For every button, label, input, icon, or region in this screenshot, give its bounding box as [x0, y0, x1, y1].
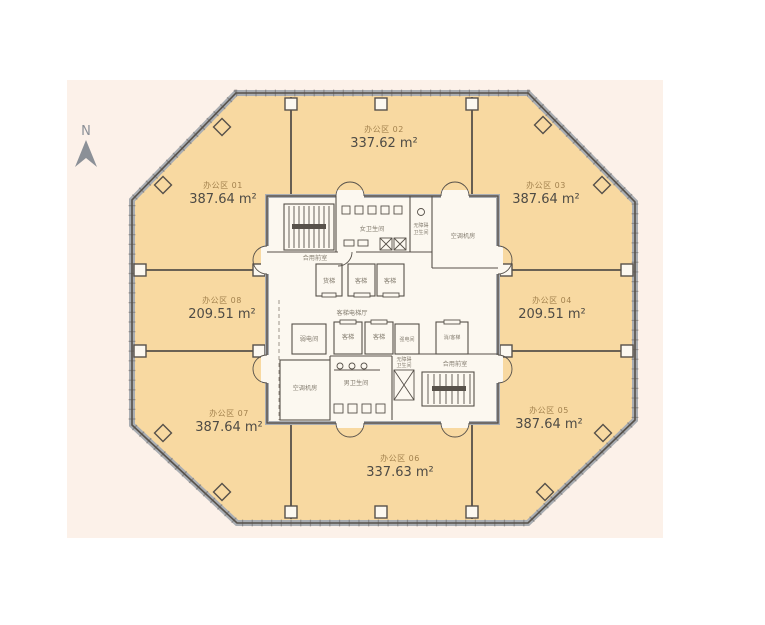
elevator-door-sill [444, 320, 460, 324]
column [375, 98, 387, 110]
column [466, 506, 478, 518]
door-opening [336, 190, 364, 201]
room-label: 无障碍 [396, 356, 411, 363]
room-label: 合用前室 [443, 360, 468, 368]
zone-name: 办公区 02 [364, 124, 404, 134]
floor-plan-page: N [0, 0, 765, 625]
floor-plan-canvas: N [0, 0, 765, 625]
core: 合用前室 货梯 客梯 客梯 女卫生间 无障碍 卫生间 空调机房 客梯电梯厅 弱电… [253, 182, 512, 437]
column [466, 98, 478, 110]
elevator-door-sill [340, 320, 356, 324]
stair-rail [432, 386, 466, 391]
north-label: N [81, 124, 91, 139]
zone-area: 387.64 m² [515, 417, 583, 432]
zone-name: 办公区 08 [202, 295, 242, 305]
door-opening [261, 355, 272, 383]
room-label: 女卫生间 [360, 225, 385, 233]
door-opening [336, 417, 364, 428]
door-opening [441, 190, 469, 201]
column [285, 506, 297, 518]
zone-name: 办公区 06 [380, 453, 420, 463]
room-label: 强电间 [399, 336, 414, 343]
room-label: 无障碍 [413, 222, 428, 229]
room-label: 弱电间 [300, 335, 319, 343]
zone-name: 办公区 01 [203, 180, 243, 190]
zone-area: 209.51 m² [188, 307, 256, 322]
column [285, 98, 297, 110]
stair-rail [292, 224, 326, 229]
zone-area: 387.64 m² [195, 420, 263, 435]
room-label: 卫生间 [396, 362, 411, 369]
room-label: 空调机房 [293, 384, 318, 392]
room-label: 空调机房 [451, 232, 476, 240]
room-label: 合用前室 [303, 254, 328, 262]
zone-name: 办公区 03 [526, 180, 566, 190]
elevator-door-sill [383, 293, 399, 297]
elevator-door-sill [354, 293, 370, 297]
room-label: 男卫生间 [344, 379, 369, 387]
room-label: 客梯 [384, 277, 396, 285]
room-label: 客梯 [373, 333, 385, 341]
zone-area: 337.62 m² [350, 136, 418, 151]
door-opening [492, 355, 503, 383]
column [621, 264, 633, 276]
column [134, 264, 146, 276]
zone-area: 209.51 m² [518, 307, 586, 322]
elevator-door-sill [371, 320, 387, 324]
room-label: 客梯 [355, 277, 367, 285]
zone-area: 387.64 m² [189, 192, 257, 207]
room-label: 卫生间 [413, 229, 428, 236]
zone-name: 办公区 04 [532, 295, 572, 305]
column [375, 506, 387, 518]
room-label: 客梯电梯厅 [337, 309, 368, 317]
elevator-door-sill [322, 293, 336, 297]
column [134, 345, 146, 357]
room-label: 消/客梯 [444, 334, 461, 341]
column [621, 345, 633, 357]
door-opening [441, 417, 469, 428]
room-label: 客梯 [342, 333, 354, 341]
zone-area: 387.64 m² [512, 192, 580, 207]
door-opening [261, 246, 272, 274]
room-label: 货梯 [323, 277, 335, 285]
zone-area: 337.63 m² [366, 465, 434, 480]
door-opening [492, 246, 503, 274]
zone-name: 办公区 07 [209, 408, 249, 418]
zone-name: 办公区 05 [529, 405, 569, 415]
